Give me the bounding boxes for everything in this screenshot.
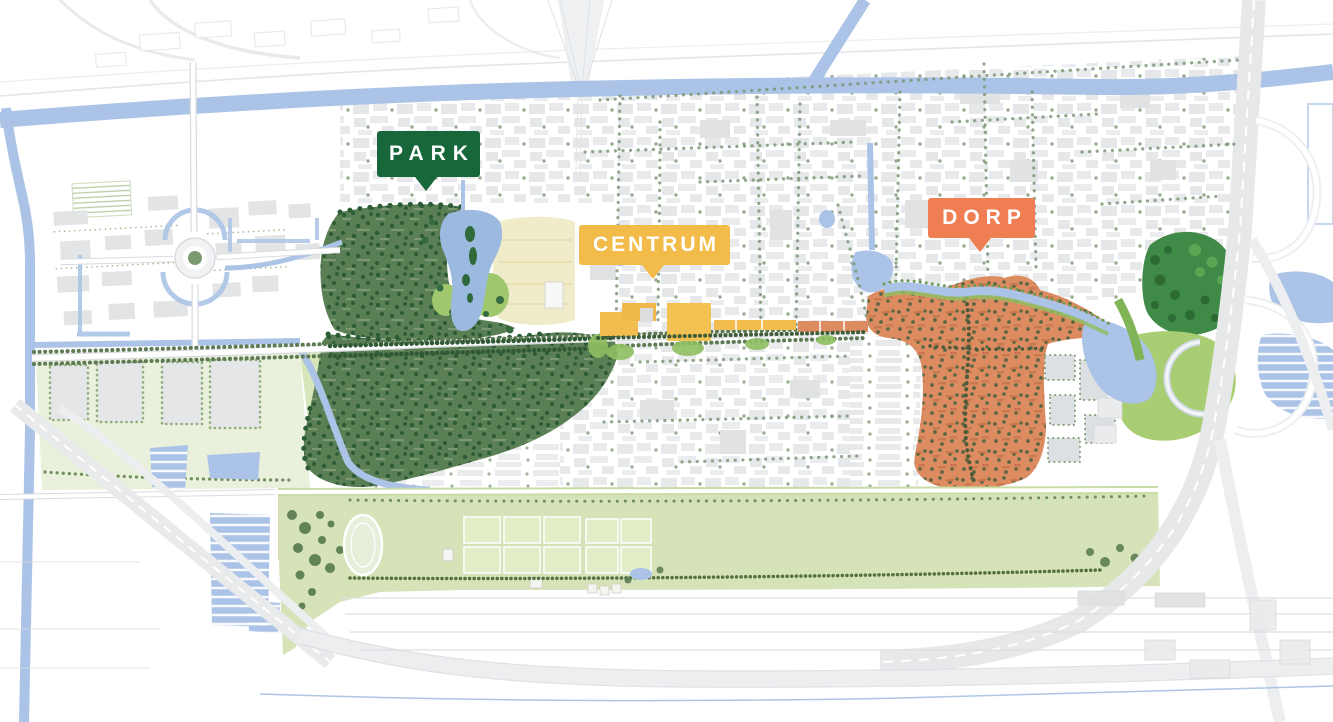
district-label-centrum-text: CENTRUM <box>590 233 719 257</box>
district-label-dorp: DORP <box>928 198 1035 238</box>
beige-field <box>493 217 575 325</box>
district-label-park-text: PARK <box>382 142 475 166</box>
farm-building <box>545 282 563 308</box>
label-pointer-park <box>415 177 437 191</box>
town-canal <box>870 143 872 250</box>
district-label-centrum: CENTRUM <box>579 225 730 265</box>
district-label-dorp-text: DORP <box>936 206 1027 230</box>
roundabout-center <box>188 251 202 265</box>
athletics-track <box>344 515 382 575</box>
sports-pond <box>630 568 652 580</box>
label-pointer-dorp <box>969 238 991 252</box>
map-canvas <box>0 0 1333 722</box>
avenue-canal <box>32 341 300 345</box>
masterplan-map: PARK CENTRUM DORP <box>0 0 1333 722</box>
district-label-park: PARK <box>377 131 480 177</box>
label-pointer-centrum <box>642 265 664 279</box>
sports-park-road <box>278 490 1158 492</box>
